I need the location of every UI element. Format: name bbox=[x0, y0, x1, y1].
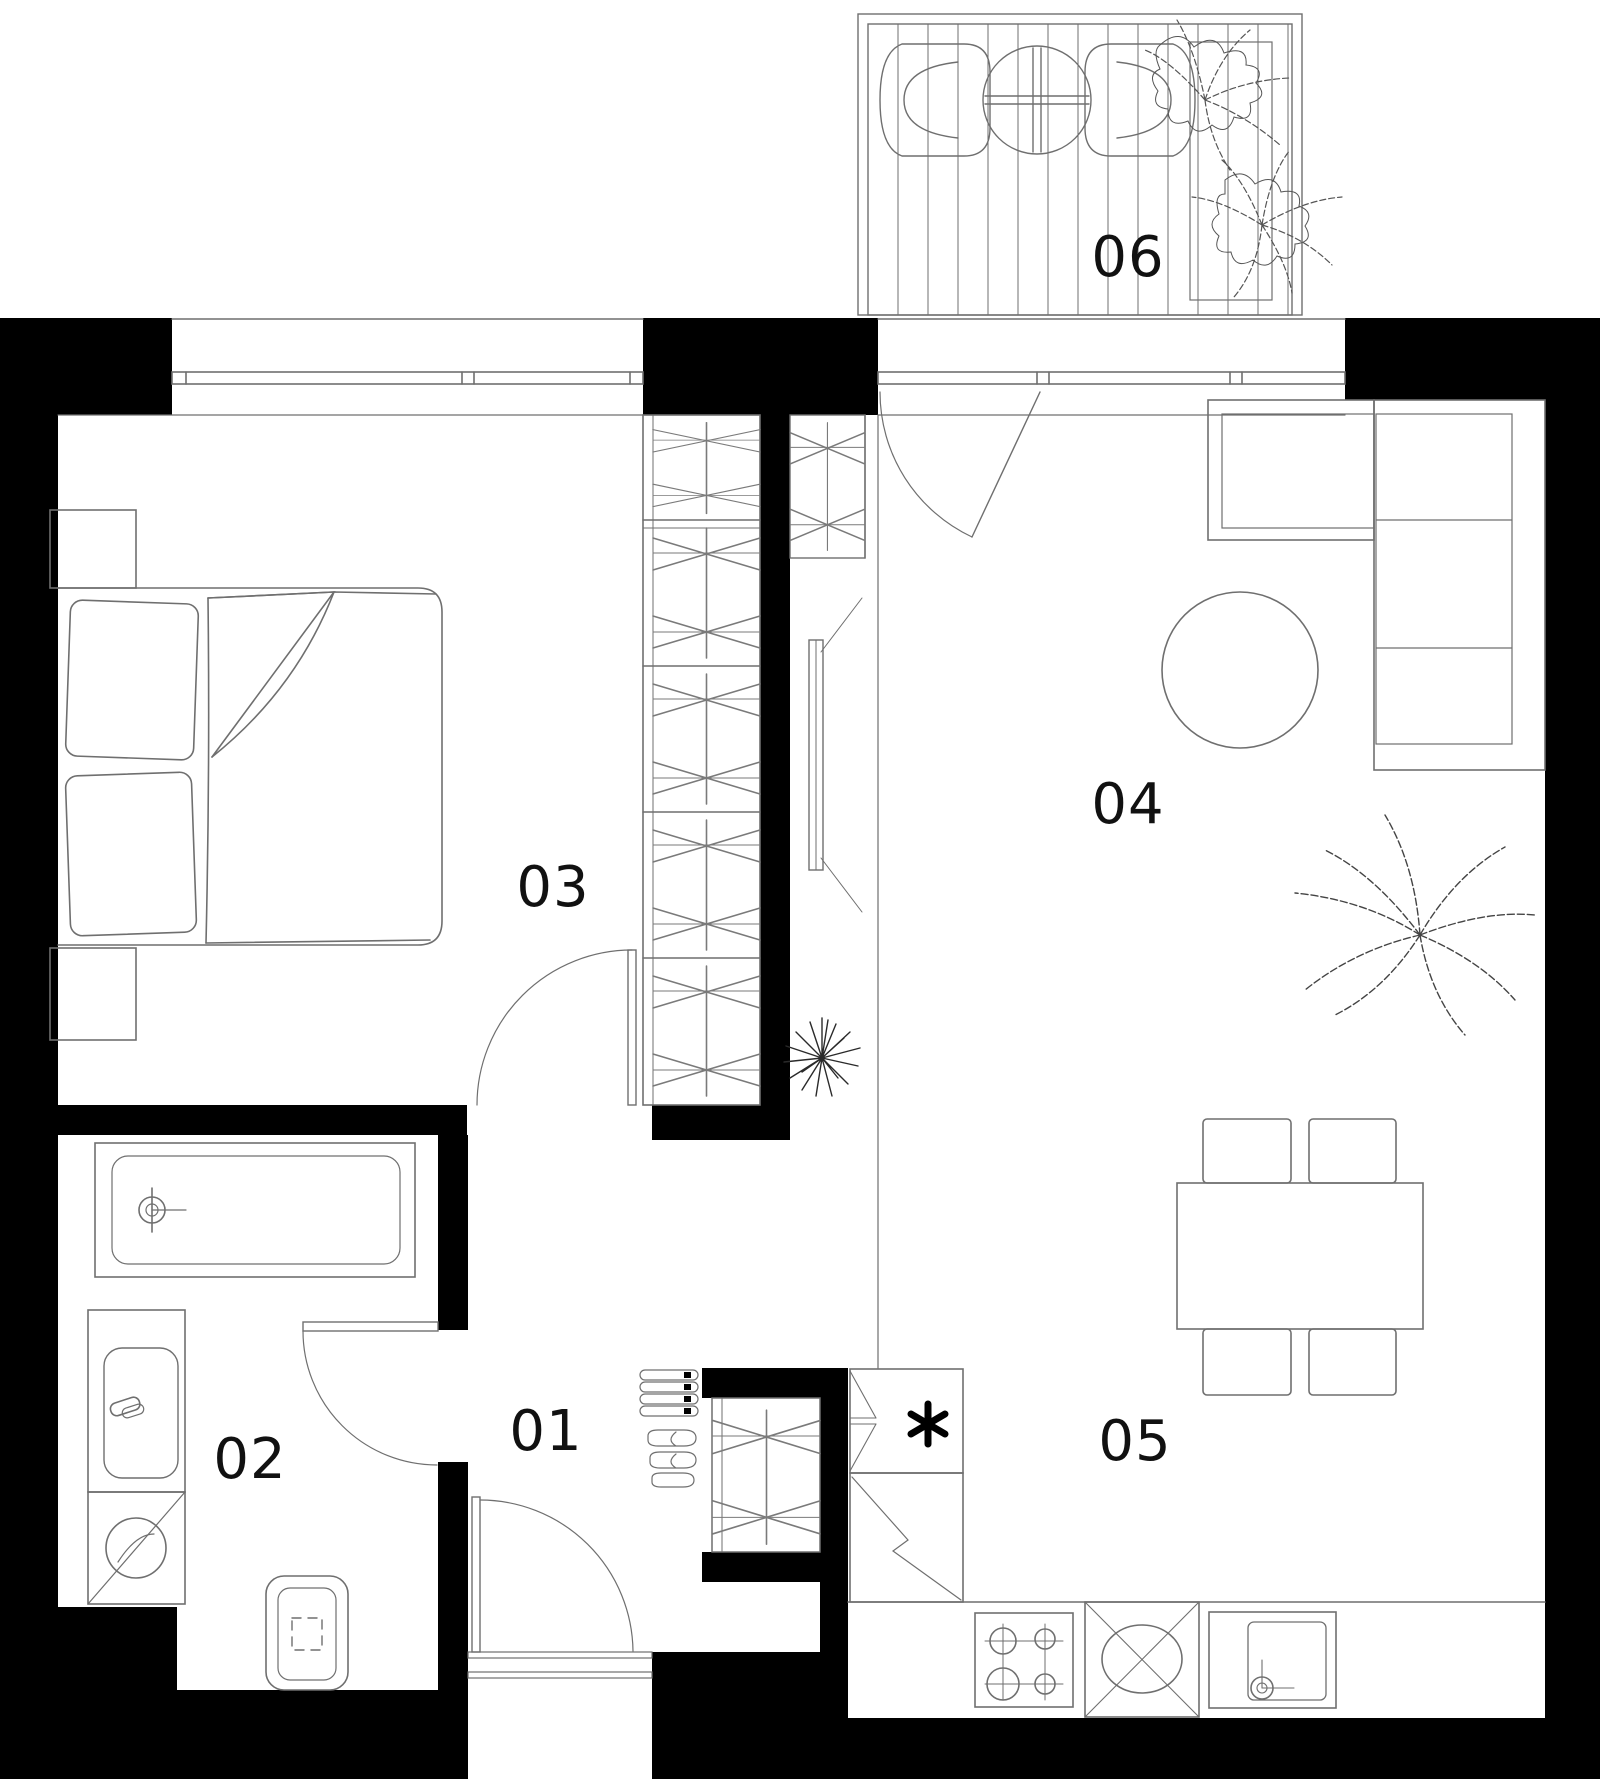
pillow bbox=[65, 600, 198, 760]
bed bbox=[58, 588, 442, 945]
bedroom bbox=[50, 415, 760, 1105]
freezer-asterisk-icon bbox=[911, 1404, 945, 1444]
shoe-closet bbox=[712, 1398, 820, 1552]
door-swing-arc-icon bbox=[880, 392, 972, 537]
balcony-door bbox=[880, 392, 1040, 537]
wall-top-left-corner bbox=[0, 318, 172, 415]
living-room bbox=[880, 392, 1545, 1035]
coffee-table bbox=[1162, 592, 1318, 748]
room-label-06: 06 bbox=[1091, 230, 1164, 286]
balcony-chair-right bbox=[1085, 44, 1195, 156]
corridor-closet bbox=[790, 415, 865, 558]
floor-plan-drawing bbox=[0, 0, 1600, 1779]
wardrobe-section bbox=[653, 820, 760, 950]
leader-line bbox=[821, 598, 862, 652]
door-swing-arc-icon bbox=[480, 1500, 633, 1651]
room-label-05: 05 bbox=[1098, 1414, 1171, 1470]
wall-closet-bottom bbox=[702, 1552, 820, 1582]
dining-chair bbox=[1309, 1119, 1396, 1183]
bathtub bbox=[95, 1143, 415, 1277]
dining-chair bbox=[1203, 1329, 1291, 1395]
pillow bbox=[65, 772, 197, 936]
door-swing-arc-icon bbox=[303, 1331, 437, 1465]
sink-vanity bbox=[88, 1310, 185, 1492]
dining-chair bbox=[1309, 1329, 1396, 1395]
wardrobe-section bbox=[653, 674, 760, 804]
floor-plan: 01 02 03 04 05 06 bbox=[0, 0, 1600, 1779]
toilet bbox=[266, 1576, 348, 1690]
palm-plant-icon bbox=[1295, 815, 1535, 1035]
closet-hatch bbox=[713, 1410, 820, 1544]
leader-line bbox=[821, 858, 862, 912]
dining-set bbox=[1177, 1119, 1423, 1395]
balcony-table bbox=[983, 46, 1091, 154]
balcony-planter bbox=[1190, 42, 1272, 300]
corridor bbox=[784, 415, 878, 1368]
balcony-outline bbox=[858, 14, 1302, 315]
wall-corridor bbox=[760, 415, 790, 1140]
duvet bbox=[206, 592, 436, 943]
room-label-02: 02 bbox=[213, 1432, 286, 1488]
tap-icon bbox=[109, 1396, 145, 1419]
entrance-door bbox=[468, 1497, 652, 1678]
walls bbox=[0, 318, 1600, 1779]
corner-sofa bbox=[1208, 400, 1545, 770]
wall-closet-right bbox=[820, 1398, 848, 1718]
dining-chair bbox=[1203, 1119, 1291, 1183]
wardrobe bbox=[643, 415, 760, 1105]
wall-right bbox=[1545, 318, 1600, 1779]
kitchen bbox=[848, 1119, 1545, 1717]
wardrobe-section bbox=[653, 966, 760, 1096]
wall-bathroom-top bbox=[0, 1105, 467, 1135]
wall-top-pier bbox=[643, 318, 878, 415]
washing-machine bbox=[88, 1492, 185, 1604]
balcony-plant-bottom bbox=[1192, 150, 1342, 297]
kitchen-sink bbox=[1209, 1612, 1336, 1708]
nightstand-bottom bbox=[50, 948, 136, 1040]
sofa-chaise bbox=[1208, 400, 1374, 540]
room-label-03: 03 bbox=[516, 860, 589, 916]
wardrobe-section bbox=[653, 423, 760, 514]
tv-panel bbox=[809, 598, 862, 912]
fridge bbox=[850, 1369, 963, 1473]
wardrobe-section bbox=[653, 528, 760, 658]
sofa-body bbox=[1374, 400, 1545, 770]
wall-bottom-right bbox=[652, 1718, 1600, 1779]
wall-bottom-left bbox=[0, 1718, 468, 1779]
closet-hatch bbox=[790, 423, 865, 550]
wall-bottom-left-block bbox=[0, 1607, 177, 1718]
bathroom-door bbox=[303, 1322, 438, 1465]
shoes-icon bbox=[640, 1370, 698, 1487]
balcony-chair-left bbox=[880, 44, 990, 156]
wall-bathroom-right-lower bbox=[438, 1462, 468, 1690]
nightstand-top bbox=[50, 510, 136, 588]
worktop-unit bbox=[1085, 1602, 1199, 1717]
dining-table bbox=[1177, 1183, 1423, 1329]
door-swing-arc-icon bbox=[477, 950, 632, 1105]
wall-bathroom-right-upper bbox=[438, 1135, 468, 1330]
bedroom-door bbox=[477, 950, 636, 1105]
plant-starburst-icon bbox=[784, 1018, 860, 1096]
room-label-04: 04 bbox=[1091, 777, 1164, 833]
room-label-01: 01 bbox=[509, 1404, 582, 1460]
wall-closet-top bbox=[702, 1368, 848, 1398]
tall-cabinet bbox=[850, 1473, 963, 1602]
stove bbox=[975, 1613, 1073, 1707]
wall-top-right bbox=[1345, 318, 1545, 400]
wall-hall-bottom-jog bbox=[652, 1652, 848, 1718]
